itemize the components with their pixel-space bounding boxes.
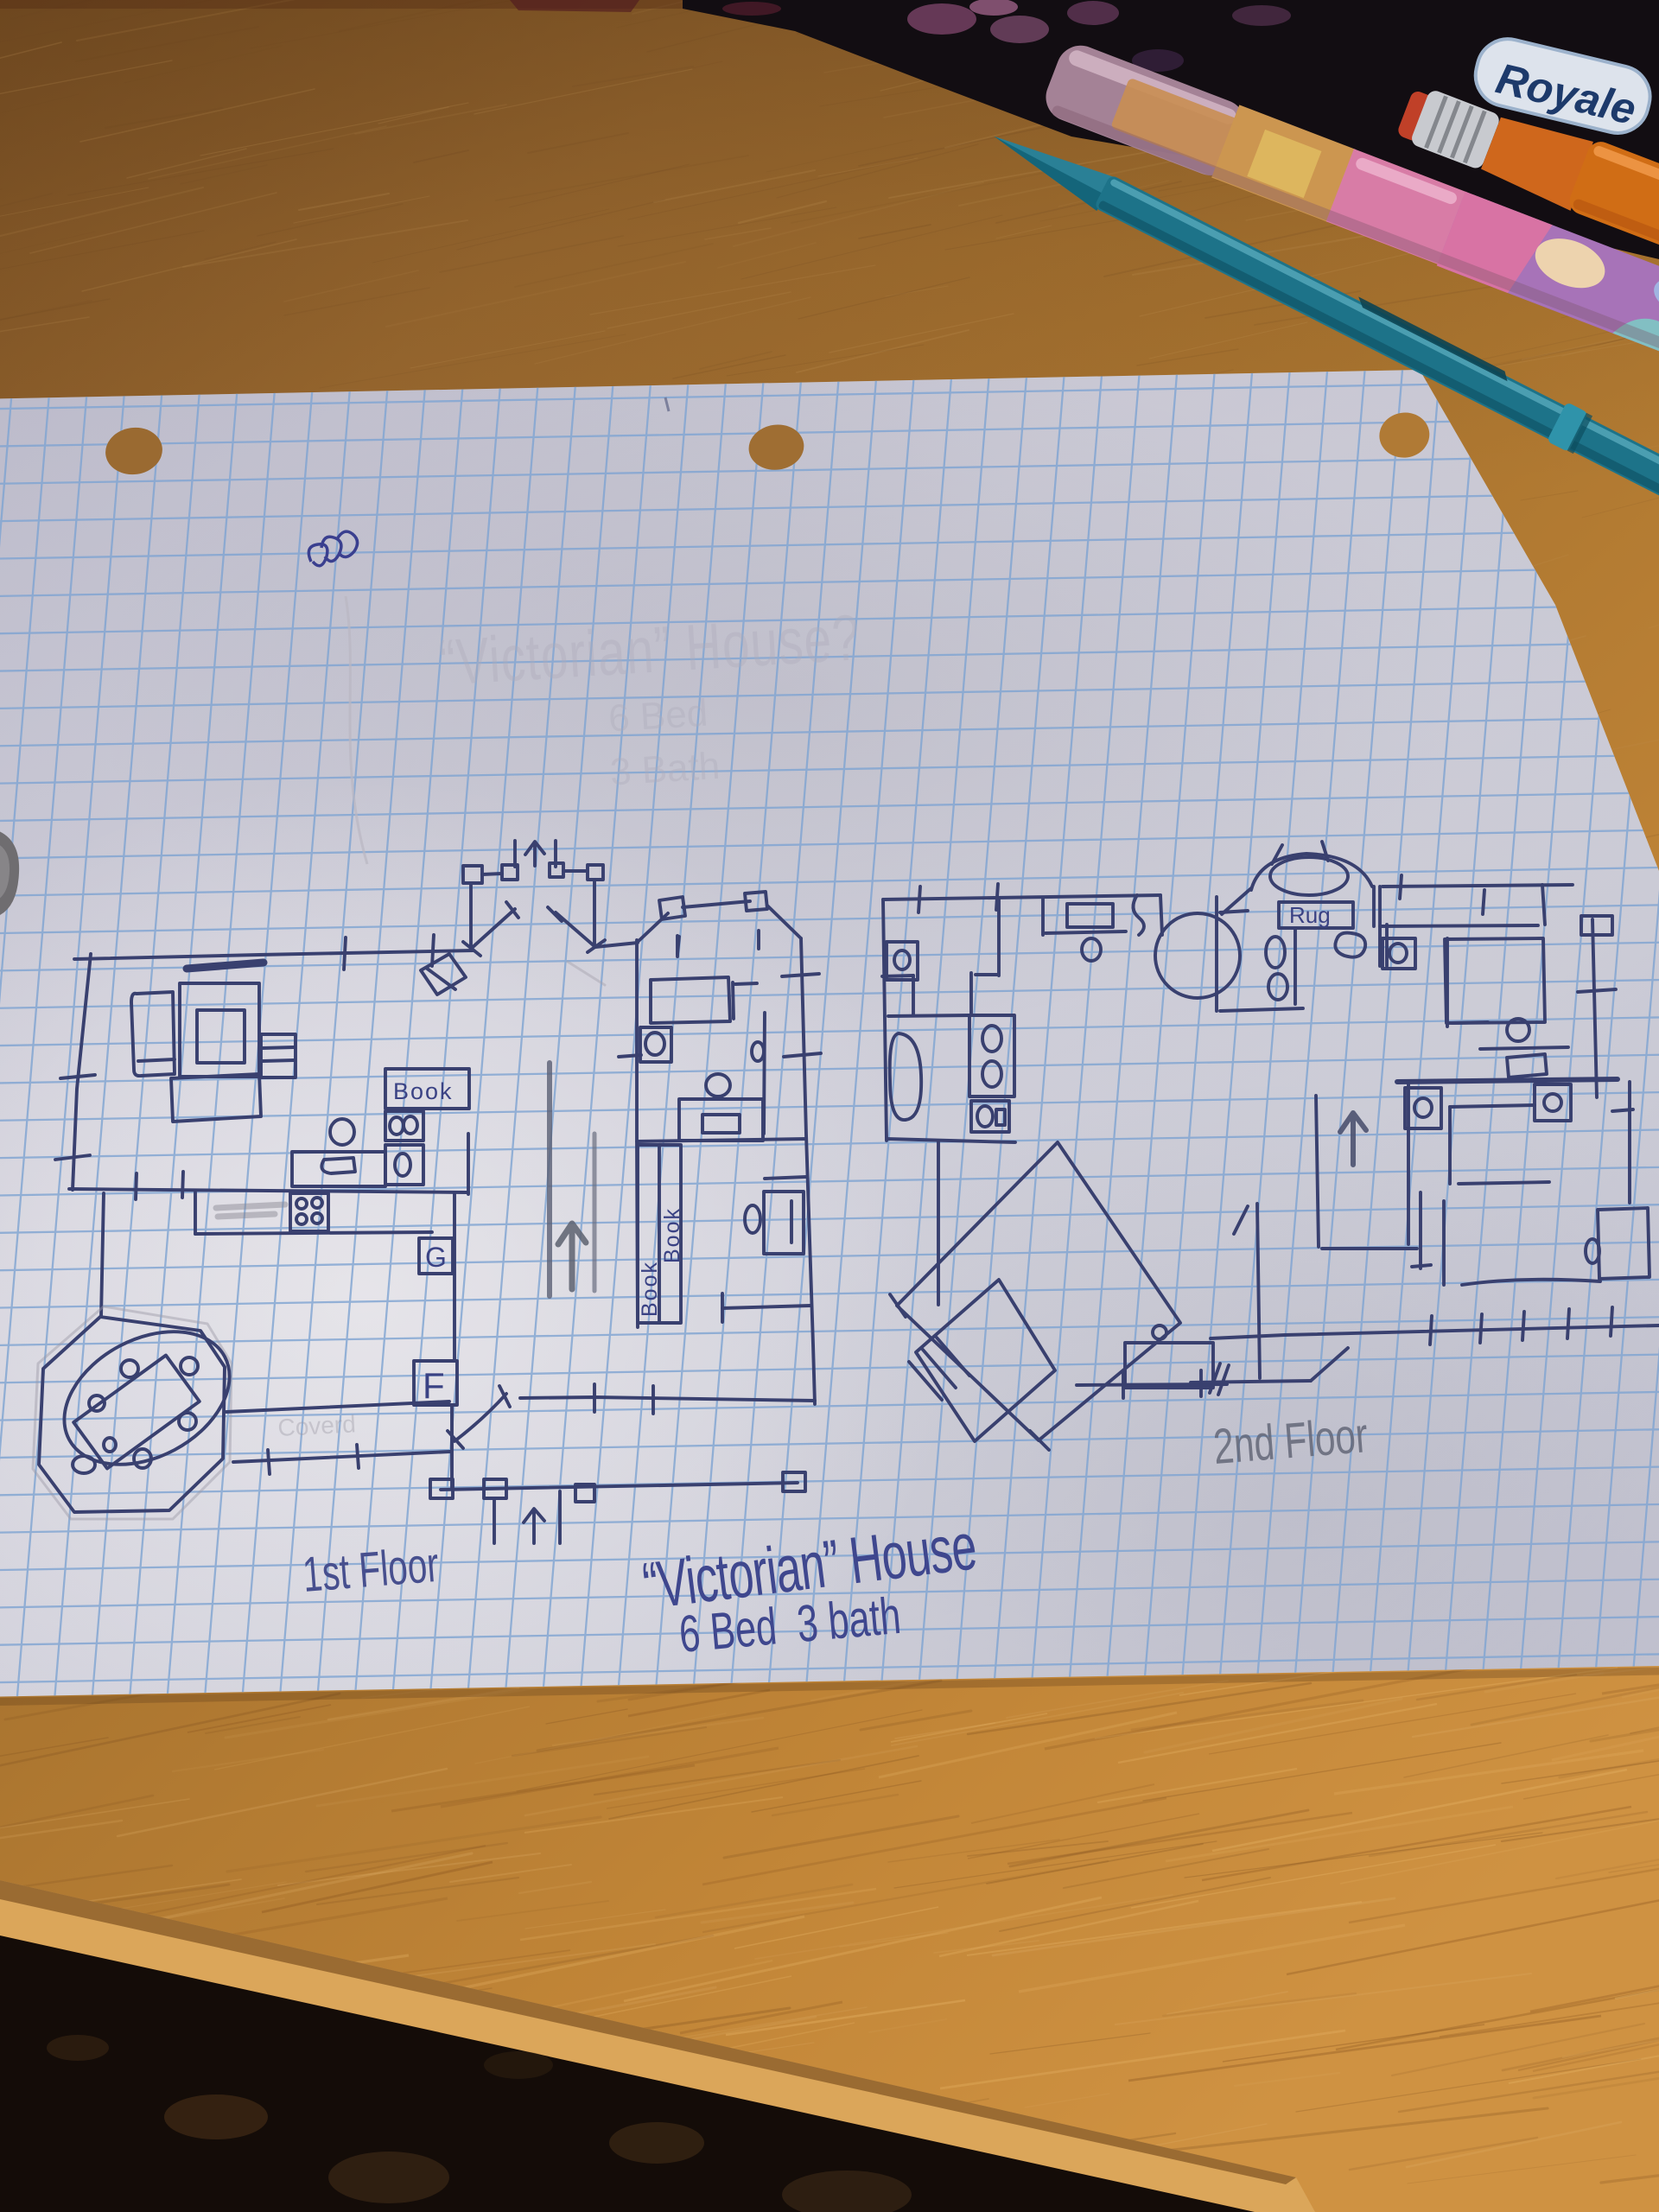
svg-text:Book: Book bbox=[393, 1078, 454, 1104]
svg-text:Rug: Rug bbox=[1289, 902, 1331, 928]
svg-text:F: F bbox=[423, 1365, 445, 1406]
svg-text:G: G bbox=[425, 1242, 447, 1273]
svg-text:1st Floor: 1st Floor bbox=[301, 1536, 441, 1603]
svg-text:3 Bath: 3 Bath bbox=[609, 745, 721, 794]
svg-text:Coverd: Coverd bbox=[277, 1410, 357, 1441]
svg-text:Book: Book bbox=[660, 1207, 684, 1263]
svg-text:6 Bed: 6 Bed bbox=[607, 692, 709, 741]
svg-text:Book: Book bbox=[638, 1261, 662, 1317]
